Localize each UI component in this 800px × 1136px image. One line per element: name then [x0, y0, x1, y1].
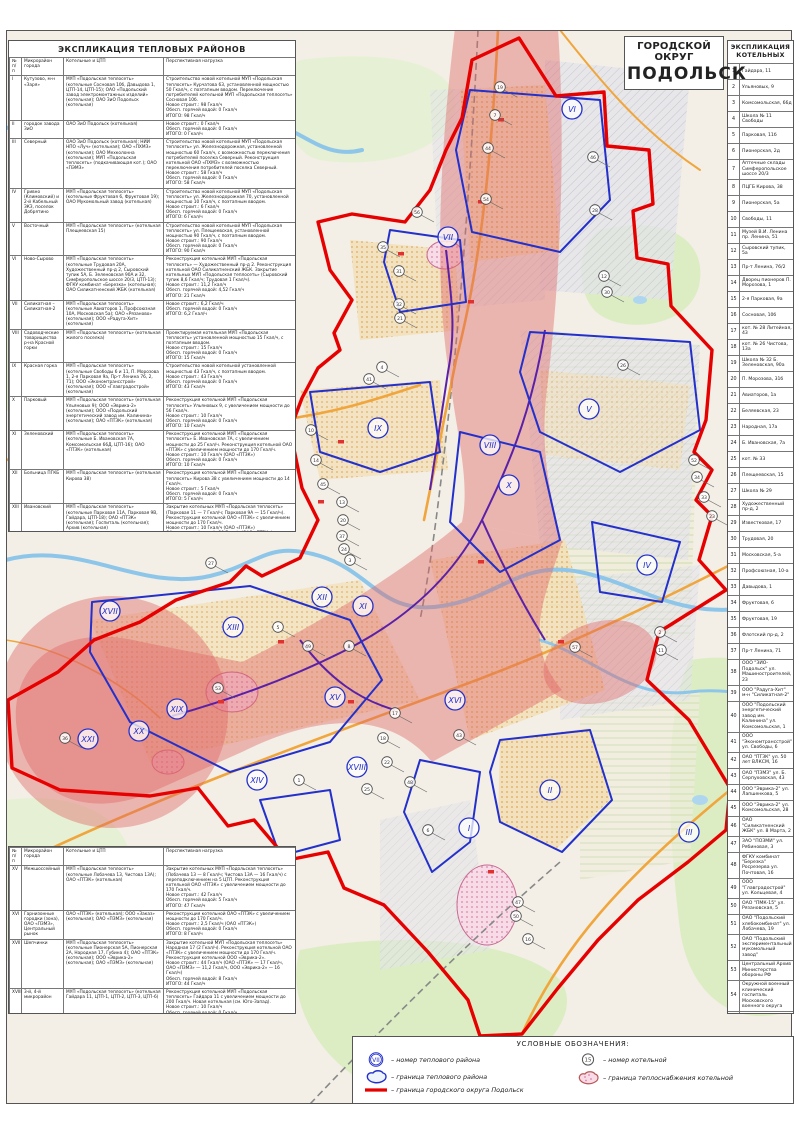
boiler-marker-label: 33 [701, 495, 707, 501]
boiler-name: ООО "ЗИО-Подольск" ул. Машиностроителей,… [740, 660, 793, 685]
table-header-row: № п/п Микрорайон города Котельные и ЦТП … [10, 848, 296, 866]
boiler-list-item: 37Пр-т Ленина, 71 [728, 643, 793, 659]
row-prospect: Проектируемая котельная МУП «Подольская … [164, 329, 296, 363]
row-num: I [10, 76, 22, 120]
col-header-boilers: Котельные и ЦТП [64, 848, 164, 866]
boiler-list-item: 29Известковая, 17 [728, 515, 793, 531]
table-row: IКутузово, м-н «Заря»МУП «Подольская теп… [10, 76, 296, 120]
boiler-marker-label: 54 [483, 197, 489, 203]
table-row: IIгородок завода ЗиООАО ЗиО Подольск (ко… [10, 120, 296, 138]
boiler-number: 19 [728, 356, 740, 371]
page-title-line2: ПОДОЛЬСК [627, 64, 721, 84]
boiler-name: Давыдова, 1 [740, 580, 773, 595]
district-marker-label: VII [443, 233, 454, 242]
district-marker-label: XXI [80, 735, 95, 744]
row-district: Красная горка [22, 363, 64, 397]
col-header-prospect: Перспективная нагрузка [164, 848, 296, 866]
boiler-number: 32 [728, 564, 740, 579]
district-marker-label: XIX [169, 705, 184, 714]
boiler-name: кот. № 33 [740, 452, 766, 467]
row-boilers: МУП «Подольская теплосеть» (котельные Фр… [64, 188, 164, 222]
legend-item-city-boundary: – граница городского округа Подольск [361, 1086, 573, 1094]
row-prospect: Закрытие котельной МУП «Подольская тепло… [164, 939, 296, 988]
row-district: Кутузово, м-н «Заря» [22, 76, 64, 120]
boiler-name: Плещеевская, 15 [740, 468, 785, 483]
table-row: IXКрасная горкаМУП «Подольская теплосеть… [10, 363, 296, 397]
boiler-list-item: 38ООО "ЗИО-Подольск" ул. Машиностроителе… [728, 659, 793, 685]
district-marker-label: IX [374, 424, 382, 433]
boiler-name: ООО "Эврика-2" ул. Лапшенкова, 5 [740, 785, 793, 800]
boiler-marker-label: 26 [620, 363, 626, 369]
row-num: XI [10, 431, 22, 470]
boiler-marker-label: 18 [380, 736, 386, 742]
boiler-list-item: 53Центральный Архив Министерства обороны… [728, 960, 793, 980]
boiler-name: Народная, 17а [740, 420, 778, 435]
boiler-list-item: 41ООО "Экономтрансстрой" ул. Свободы, 6 [728, 732, 793, 752]
row-district: Ново-Сырово [22, 256, 64, 300]
boiler-list-item: 12Сыровский тупик, 5а [728, 243, 793, 259]
boiler-list-item: 25кот. № 33 [728, 451, 793, 467]
district-marker-label: VI [568, 105, 576, 114]
row-prospect: Реконструкция котельной МУП «Подольская … [164, 988, 296, 1014]
boiler-marker-label: 10 [308, 428, 314, 434]
boiler-name: Аптечные склады Симферопольское шоссе 20… [740, 160, 793, 179]
row-prospect: Строительство новой котельной МУП «Подол… [164, 139, 296, 188]
boilers-list: 1Гайдара, 112Ульяновых, 93Комсомольская,… [728, 63, 793, 1014]
table-row: VIIIСадоводческие товарищества р-на Крас… [10, 329, 296, 363]
boiler-number: 16 [728, 308, 740, 323]
boiler-number: 52 [728, 935, 740, 960]
row-num: XII [10, 470, 22, 504]
row-num: V [10, 222, 22, 256]
row-num: XVI [10, 910, 22, 939]
boiler-list-item: 24Б. Ивановская, 7а [728, 435, 793, 451]
row-num: VII [10, 300, 22, 329]
boiler-marker-label: 35 [380, 245, 386, 251]
boiler-marker-label: 30 [604, 290, 610, 296]
boiler-marker-label: 5 [277, 625, 280, 631]
boiler-number: 17 [728, 324, 740, 339]
row-prospect: Строительство новой котельной МУП «Подол… [164, 76, 296, 120]
boiler-list-item: 17кот. № 28 Литейная, 43 [728, 323, 793, 339]
boiler-number: 47 [728, 837, 740, 852]
boiler-name: П. Морозова, 31б [740, 372, 784, 387]
boiler-list-item: 13Пр-т Ленина, 76/2 [728, 259, 793, 275]
boiler-number: 48 [728, 853, 740, 878]
row-district: Северный [22, 139, 64, 188]
heat-districts-table-continued: № п/п Микрорайон города Котельные и ЦТП … [9, 847, 296, 1014]
boiler-list-item: 47ЗАО "ПОЗМИ" ул. Рябиновая, 3 [728, 836, 793, 852]
row-district: Зеленовский [22, 431, 64, 470]
district-marker-label: X [505, 481, 512, 490]
boiler-number: 43 [728, 769, 740, 784]
boiler-marker-label: 49 [305, 644, 311, 650]
boiler-name: ООО "Экономтрансстрой" ул. Свободы, 6 [740, 733, 793, 752]
boiler-marker-label: 21 [397, 316, 403, 322]
boiler-number: 11 [728, 228, 740, 243]
row-boilers: МУП «Подольская теплосеть» (котельные Со… [64, 76, 164, 120]
boiler-marker-label: 24 [341, 547, 347, 553]
boiler-list-item: 36Флотский пр-д, 2 [728, 627, 793, 643]
row-prospect: Новое строит.: 6,2 Гкал/ч Обесп. горячей… [164, 300, 296, 329]
row-boilers: МУП «Подольская теплосеть» (котельная Ул… [64, 397, 164, 431]
row-boilers: МУП «Подольская теплосеть» (котельная Ки… [64, 470, 164, 504]
district-marker-label: XVIII [347, 763, 367, 772]
boiler-number: 35 [728, 612, 740, 627]
district-marker-label: VIII [484, 441, 497, 450]
boilers-list-panel: ЭКСПЛИКАЦИЯ КОТЕЛЬНЫХ 1Гайдара, 112Ульян… [727, 40, 794, 1014]
row-district: Силикатная – Силикатная-2 [22, 300, 64, 329]
boilers-list-title: ЭКСПЛИКАЦИЯ КОТЕЛЬНЫХ [728, 41, 793, 63]
boiler-list-item: 21Авиаторов, 1а [728, 387, 793, 403]
row-district: Шепчинки [22, 939, 64, 988]
boiler-marker-label: 14 [313, 458, 319, 464]
boiler-name: Московская, 5-а [740, 548, 782, 563]
boiler-number: 34 [728, 596, 740, 611]
row-prospect: Строительство новой котельной установлен… [164, 363, 296, 397]
col-header-num: № п/п [10, 58, 22, 76]
boiler-name: ОАО "Силикатненский ЖБК" ул. 8 Марта, 2 [740, 817, 793, 836]
boiler-name: Авиаторов, 1а [740, 388, 777, 403]
legend-item-district-number: VII – номер теплового района [361, 1052, 573, 1067]
boiler-number: 42 [728, 753, 740, 768]
boiler-name: Музей В.И. Ленина пр. Ленина, 51 [740, 228, 793, 243]
row-prospect: Реконструкция котельной МУП «Подольская … [164, 431, 296, 470]
boiler-number: 5 [728, 128, 740, 143]
table-row: XIIБольница ПГКБМУП «Подольская теплосет… [10, 470, 296, 504]
boiler-name: ОАО "Подольский экспериментальный мукомо… [740, 935, 793, 960]
boiler-number: 39 [728, 686, 740, 701]
page-title-line1: ГОРОДСКОЙ ОКРУГ [627, 41, 721, 63]
boiler-number: 7 [728, 160, 740, 179]
boiler-name: ОАО "ПМК-15" ул. Рязановская, 5 [740, 899, 793, 914]
row-district: 3-й, 4-й микрорайон [22, 988, 64, 1014]
boiler-marker-label: 2 [659, 630, 662, 636]
boiler-list-item: 50ОАО "ПМК-15" ул. Рязановская, 5 [728, 898, 793, 914]
table-row: IIIСеверныйОАО ЗиО Подольск (котельная);… [10, 139, 296, 188]
boiler-marker-label: 28 [592, 208, 598, 214]
boiler-name: Беляевская, 23 [740, 404, 780, 419]
boiler-number: 8 [728, 180, 740, 195]
row-num: VI [10, 256, 22, 300]
legend-label: – граница теплоснабжения котельной [603, 1074, 733, 1082]
row-district: Ивановский [22, 504, 64, 532]
row-district: Больница ПГКБ [22, 470, 64, 504]
boiler-marker-label: 44 [485, 146, 491, 152]
boiler-number: 22 [728, 404, 740, 419]
row-boilers: МУП «Подольская теплосеть» (котельные Тр… [64, 256, 164, 300]
svg-text:15: 15 [585, 1058, 592, 1064]
legend-label: – номер теплового района [391, 1056, 480, 1064]
boiler-name: Центральный Архив Министерства обороны Р… [740, 961, 793, 980]
boiler-number: 51 [728, 915, 740, 934]
legend-title: УСЛОВНЫЕ ОБОЗНАЧЕНИЯ: [353, 1037, 793, 1050]
boiler-name: 2-я Парковая, 9а [740, 292, 784, 307]
boiler-name: ООО "Подольский энергетический завод им.… [740, 702, 793, 732]
district-marker-label: XIV [249, 776, 264, 785]
boiler-marker-label: 25 [364, 787, 370, 793]
boiler-marker-label: 27 [208, 561, 214, 567]
row-num: XVIII [10, 988, 22, 1014]
boiler-list-item: 3Комсомольская, 66д [728, 95, 793, 111]
boiler-list-item: 45ООО "Эврика-2" ул. Комсомольская, 28 [728, 800, 793, 816]
boiler-name: ОАО "ПЗМЗ" ул. Б. Серпуховская, 43 [740, 769, 793, 784]
district-marker-label: IV [643, 561, 651, 570]
row-boilers: МУП «Подольская теплосеть» (котельные Б.… [64, 431, 164, 470]
boiler-list-item: 48ФГКУ комбинат "Березка" Росрезерва ул.… [728, 852, 793, 878]
boiler-name: Сосновая, 10б [740, 308, 777, 323]
col-header-prospect: Перспективная нагрузка [164, 58, 296, 76]
boiler-name: Школа № 32 Б. Зеленовская, 90а [740, 356, 793, 371]
boiler-list-item: 31Московская, 5-а [728, 547, 793, 563]
boiler-name: Художественный пр-д, 2 [740, 500, 793, 515]
row-boilers: ОАО «ПТЗК» (котельная); ООО «Заказ» (кот… [64, 910, 164, 939]
boiler-list-item: 26Плещеевская, 15 [728, 467, 793, 483]
table-header-row: № п/п Микрорайон города Котельные и ЦТП … [10, 58, 296, 76]
table-row: VIIСиликатная – Силикатная-2МУП «Подольс… [10, 300, 296, 329]
row-boilers: МУП «Подольская теплосеть» (котельная Га… [64, 988, 164, 1014]
boiler-name: Флотский пр-д, 2 [740, 628, 785, 643]
boiler-list-item: 5Парковая, 11б [728, 127, 793, 143]
row-prospect: Новое строит.: 0 Гкал/ч Обесп. горячей в… [164, 120, 296, 138]
row-num: VIII [10, 329, 22, 363]
legend-right-column: 15 – номер котельной – граница теплоснаб… [573, 1050, 785, 1096]
boiler-number: 23 [728, 420, 740, 435]
boiler-list-item: 49ООО "Главградострой" ул. Кольцевая, 4 [728, 878, 793, 898]
boiler-number: 50 [728, 899, 740, 914]
row-num: X [10, 397, 22, 431]
legend-box: УСЛОВНЫЕ ОБОЗНАЧЕНИЯ: VII – номер теплов… [352, 1036, 794, 1104]
boiler-number: 10 [728, 212, 740, 227]
row-boilers: МУП «Подольская теплосеть» (котельные Св… [64, 363, 164, 397]
boiler-list-item: 8ПЦГБ Кирова, 38 [728, 179, 793, 195]
boiler-name: ООО "Эврика-2" ул. Комсомольская, 28 [740, 801, 793, 816]
boiler-list-item: 20П. Морозова, 31б [728, 371, 793, 387]
boiler-name: Трудовая, 20 [740, 532, 774, 547]
boiler-marker-label: 7 [494, 113, 497, 119]
boiler-name: ООО "Радуга-Хит" м-н "Силикатная-2" [740, 686, 793, 701]
boiler-list-item: 10Свободы, 11 [728, 211, 793, 227]
boiler-name: Профсоюзная, 10-а [740, 564, 790, 579]
boiler-name: ООО "Главградострой" ул. Кольцевая, 4 [740, 879, 793, 898]
district-marker-label: XV [329, 693, 341, 702]
boiler-number: 49 [728, 879, 740, 898]
boiler-number: 4 [728, 112, 740, 127]
boiler-list-item: 54Окружной военный клинический госпиталь… [728, 980, 793, 1011]
boiler-marker-label: 45 [320, 482, 326, 488]
legend-item-boiler-number: 15 – номер котельной [573, 1052, 785, 1067]
svg-text:VII: VII [372, 1057, 380, 1064]
boiler-list-item: 23Народная, 17а [728, 419, 793, 435]
boiler-list-item: 11Музей В.И. Ленина пр. Ленина, 51 [728, 227, 793, 243]
table-row: XIЗеленовскийМУП «Подольская теплосеть» … [10, 431, 296, 470]
boiler-marker-label: 16 [525, 937, 531, 943]
boiler-marker-label: 4 [381, 365, 384, 371]
title-box: ГОРОДСКОЙ ОКРУГ ПОДОЛЬСК [624, 36, 724, 90]
boiler-number: 21 [728, 388, 740, 403]
row-district: Гарнизонные городки (зона), ОАО «ПЗМЗ», … [22, 910, 64, 939]
boiler-marker-label: 50 [513, 914, 519, 920]
boiler-number: 40 [728, 702, 740, 732]
boiler-name: Пионерская, 5а [740, 196, 781, 211]
boiler-list-item: 55НИИ НПО "Луч" [728, 1011, 793, 1014]
boiler-name: Свободы, 11 [740, 212, 773, 227]
boiler-name: Б. Ивановская, 7а [740, 436, 786, 451]
boiler-marker-label: 46 [590, 155, 596, 161]
table-row: XVIГарнизонные городки (зона), ОАО «ПЗМЗ… [10, 910, 296, 939]
boiler-number: 24 [728, 436, 740, 451]
table-row: XVМежшоссейныйМУП «Подольская теплосеть»… [10, 866, 296, 910]
table-row: XVIIШепчинкиМУП «Подольская теплосеть» (… [10, 939, 296, 988]
row-boilers: МУП «Подольская теплосеть» (котельная жи… [64, 329, 164, 363]
boiler-name: ПЦГБ Кирова, 38 [740, 180, 784, 195]
map-sheet: 1974446542856353132211230264411014451320… [0, 0, 800, 1136]
district-marker-label: XX [133, 727, 145, 736]
boiler-number: 46 [728, 817, 740, 836]
boiler-list-item: 43ОАО "ПЗМЗ" ул. Б. Серпуховская, 43 [728, 768, 793, 784]
boiler-number: 14 [728, 276, 740, 291]
row-num: XIII [10, 504, 22, 532]
district-marker-label: XVII [101, 607, 118, 616]
boiler-marker-label: 19 [497, 85, 503, 91]
boiler-marker-label: 47 [515, 900, 521, 906]
boiler-number: 38 [728, 660, 740, 685]
boiler-list-item: 35Фруктовая, 19 [728, 611, 793, 627]
boiler-name: Дворец пионеров П. Морозова, 1 [740, 276, 793, 291]
boiler-number: 44 [728, 785, 740, 800]
col-header-district: Микрорайон города [22, 848, 64, 866]
row-prospect: Реконструкция котельной ОАО «ПТЗК» с уве… [164, 910, 296, 939]
boiler-name: НИИ НПО "Луч" [740, 1012, 780, 1014]
col-header-boilers: Котельные и ЦТП [64, 58, 164, 76]
boiler-list-item: 152-я Парковая, 9а [728, 291, 793, 307]
boiler-list-item: 27Школа № 29 [728, 483, 793, 499]
boiler-number: 26 [728, 468, 740, 483]
boiler-name: Школа № 11 Свободы [740, 112, 793, 127]
district-marker-label: XIII [226, 623, 240, 632]
row-boilers: МУП «Подольская теплосеть» (котельные Пи… [64, 939, 164, 988]
row-num: IX [10, 363, 22, 397]
district-marker-label: III [685, 828, 693, 837]
boiler-list-item: 18кот. № 26 Чистова, 13а [728, 339, 793, 355]
boiler-name: ОАО "ПТЗК" ул. 50 лет ВЛКСМ, 16 [740, 753, 793, 768]
district-marker-label: V [586, 405, 592, 414]
row-boilers: МУП «Подольская теплосеть» (котельные Ав… [64, 300, 164, 329]
boiler-marker-label: 8 [348, 644, 351, 650]
boiler-marker-label: 53 [215, 686, 221, 692]
row-boilers: МУП «Подольская теплосеть» (котельная Пл… [64, 222, 164, 256]
boiler-marker-label: 32 [396, 302, 402, 308]
row-prospect: Закрытие котельных МУП «Подольская тепло… [164, 504, 296, 532]
boiler-list-item: 30Трудовая, 20 [728, 531, 793, 547]
row-district: городок завода ЗиО [22, 120, 64, 138]
boiler-number: 55 [728, 1012, 740, 1014]
boiler-list-item: 39ООО "Радуга-Хит" м-н "Силикатная-2" [728, 685, 793, 701]
boiler-number: 53 [728, 961, 740, 980]
city-boundary-icon [361, 1086, 391, 1094]
district-marker-label: II [548, 786, 553, 795]
boiler-marker-label: 37 [339, 534, 345, 540]
table-row: VВосточныйМУП «Подольская теплосеть» (ко… [10, 222, 296, 256]
boiler-marker-label: 56 [414, 210, 420, 216]
boiler-name: ЗАО "ПОЗМИ" ул. Рябиновая, 3 [740, 837, 793, 852]
row-prospect: Реконструкция котельной МУП «Подольская … [164, 256, 296, 300]
boiler-name: Фруктовая, 19 [740, 612, 778, 627]
boiler-marker-label: 1 [298, 778, 301, 784]
boiler-marker-label: 13 [339, 500, 345, 506]
heat-districts-table2-panel: № п/п Микрорайон города Котельные и ЦТП … [8, 846, 296, 1014]
row-prospect: Закрытие котельных МУП «Подольская тепло… [164, 866, 296, 910]
boiler-marker-label: 34 [694, 475, 700, 481]
boiler-list-item: 40ООО "Подольский энергетический завод и… [728, 701, 793, 732]
boiler-number-icon: 15 [573, 1052, 603, 1067]
heat-districts-table-title: ЭКСПЛИКАЦИЯ ТЕПЛОВЫХ РАЙОНОВ [9, 41, 295, 57]
boiler-number: 3 [728, 96, 740, 111]
boiler-number: 41 [728, 733, 740, 752]
legend-left-column: VII – номер теплового района – граница т… [361, 1050, 573, 1096]
boiler-list-item: 7Аптечные склады Симферопольское шоссе 2… [728, 159, 793, 179]
boiler-number: 18 [728, 340, 740, 355]
boiler-number: 30 [728, 532, 740, 547]
boiler-marker-label: 3 [349, 558, 352, 564]
boiler-marker-label: 41 [366, 377, 372, 383]
boiler-marker-label: 43 [456, 733, 462, 739]
district-number-icon: VII [361, 1052, 391, 1067]
district-marker-label: XVI [447, 696, 462, 705]
legend-label: – граница городского округа Подольск [391, 1086, 524, 1094]
col-header-num: № п/п [10, 848, 22, 866]
boiler-name: ФГКУ комбинат "Березка" Росрезерва ул. П… [740, 853, 793, 878]
boiler-name: Фруктовая, 6 [740, 596, 775, 611]
boiler-number: 54 [728, 981, 740, 1011]
boiler-number: 12 [728, 244, 740, 259]
row-num: XVII [10, 939, 22, 988]
boiler-number: 9 [728, 196, 740, 211]
boiler-list-item: 42ОАО "ПТЗК" ул. 50 лет ВЛКСМ, 16 [728, 752, 793, 768]
district-boundary-icon [361, 1069, 391, 1084]
boiler-number: 15 [728, 292, 740, 307]
boiler-marker-label: 48 [407, 780, 413, 786]
boiler-list-item: 4Школа № 11 Свободы [728, 111, 793, 127]
row-prospect: Строительство новой котельной МУП «Подол… [164, 222, 296, 256]
boiler-name: кот. № 28 Литейная, 43 [740, 324, 793, 339]
district-marker-label: XII [316, 593, 328, 602]
boiler-marker-label: 11 [658, 648, 664, 654]
boiler-number: 29 [728, 516, 740, 531]
boiler-number: 37 [728, 644, 740, 659]
boiler-name: кот. № 26 Чистова, 13а [740, 340, 793, 355]
row-prospect: Реконструкция котельной МУП «Подольская … [164, 470, 296, 504]
boiler-list-item: 14Дворец пионеров П. Морозова, 1 [728, 275, 793, 291]
boiler-number: 27 [728, 484, 740, 499]
boiler-marker-label: 23 [709, 514, 715, 520]
row-district: Гривно (Климовский) и 2-й Кабельный ЗКЗ,… [22, 188, 64, 222]
boiler-list-item: 32Профсоюзная, 10-а [728, 563, 793, 579]
row-district: Межшоссейный [22, 866, 64, 910]
boiler-supply-icon [573, 1069, 603, 1086]
row-district: Парковый [22, 397, 64, 431]
boiler-number: 33 [728, 580, 740, 595]
boiler-number: 36 [728, 628, 740, 643]
boiler-name: Сыровский тупик, 5а [740, 244, 793, 259]
boiler-list-item: 9Пионерская, 5а [728, 195, 793, 211]
boiler-marker-label: 20 [340, 518, 346, 524]
row-boilers: МУП «Подольская теплосеть» (котельные Ло… [64, 866, 164, 910]
boiler-name: Окружной военный клинический госпиталь М… [740, 981, 793, 1011]
row-num: II [10, 120, 22, 138]
boiler-name: Парковая, 11б [740, 128, 778, 143]
boiler-list-item: 16Сосновая, 10б [728, 307, 793, 323]
